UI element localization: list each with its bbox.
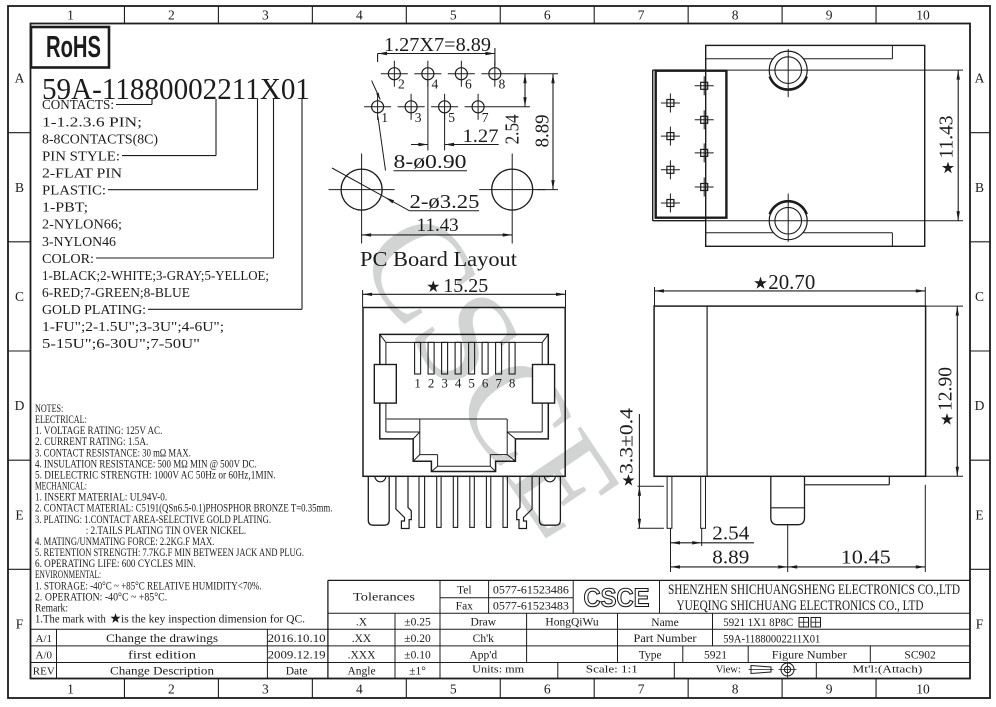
svg-text:PIN STYLE:: PIN STYLE:: [42, 148, 120, 163]
svg-text:1-PBT;: 1-PBT;: [42, 200, 88, 215]
svg-text:F: F: [16, 616, 24, 631]
svg-text:D: D: [975, 398, 985, 413]
svg-text:1.27: 1.27: [463, 127, 499, 147]
svg-text:3: 3: [262, 682, 269, 697]
svg-text:3: 3: [441, 376, 448, 391]
svg-text:4: 4: [455, 376, 462, 391]
svg-text:2.54: 2.54: [502, 114, 524, 144]
svg-text:8.89: 8.89: [712, 547, 749, 569]
svg-text:2016.10.10: 2016.10.10: [268, 633, 326, 645]
svg-text:5: 5: [468, 376, 475, 391]
svg-text:A/1: A/1: [36, 633, 53, 645]
svg-text:2-NYLON66;: 2-NYLON66;: [42, 217, 122, 232]
svg-text:4: 4: [356, 682, 363, 697]
svg-text:Draw: Draw: [471, 617, 497, 629]
svg-text:8: 8: [509, 376, 516, 391]
svg-text:Figure Number: Figure Number: [772, 649, 847, 661]
svg-text:2: 2: [428, 376, 435, 391]
svg-text:1: 1: [67, 682, 74, 697]
svg-text:C: C: [15, 289, 24, 304]
svg-text:REV: REV: [33, 666, 55, 678]
svg-text:A: A: [975, 71, 985, 86]
svg-text:App'd: App'd: [469, 649, 497, 661]
svg-text:±0.25: ±0.25: [404, 617, 431, 629]
svg-text:2: 2: [398, 77, 405, 92]
svg-text:A/0: A/0: [36, 649, 53, 661]
svg-text:9: 9: [826, 682, 833, 697]
svg-text:5: 5: [448, 110, 455, 125]
svg-text:1-FU";2-1.5U";3-3U";4-6U";: 1-FU";2-1.5U";3-3U";4-6U";: [42, 319, 224, 334]
svg-text:2-FLAT PIN: 2-FLAT PIN: [42, 165, 122, 180]
svg-text:11.43: 11.43: [417, 216, 459, 236]
svg-text:Name: Name: [651, 617, 678, 629]
svg-text:B: B: [15, 180, 24, 195]
svg-text:.X: .X: [356, 617, 368, 629]
svg-text:7: 7: [638, 8, 645, 23]
svg-text:9: 9: [826, 8, 833, 23]
svg-text:6: 6: [544, 682, 551, 697]
svg-text:7: 7: [638, 682, 645, 697]
svg-text:4: 4: [356, 8, 363, 23]
svg-text:7: 7: [495, 376, 502, 391]
svg-text:6-RED;7-GREEN;8-BLUE: 6-RED;7-GREEN;8-BLUE: [42, 285, 190, 300]
svg-text:CSCE: CSCE: [584, 585, 650, 613]
svg-text:0577-61523486: 0577-61523486: [493, 584, 569, 596]
svg-text:8-8CONTACTS(8C): 8-8CONTACTS(8C): [42, 131, 158, 147]
svg-text:2009.12.19: 2009.12.19: [268, 649, 326, 661]
svg-text:CONTACTS:: CONTACTS:: [42, 97, 114, 112]
svg-text:Mt'l:(Attach): Mt'l:(Attach): [852, 665, 923, 676]
svg-text:Fax: Fax: [456, 601, 474, 613]
svg-text:7: 7: [482, 110, 489, 125]
svg-text:Change the drawings: Change the drawings: [106, 633, 219, 645]
svg-text:2-ø3.25: 2-ø3.25: [410, 192, 480, 213]
svg-text:2.54: 2.54: [712, 523, 749, 545]
svg-text:Part Number: Part Number: [634, 633, 697, 645]
svg-text:first edition: first edition: [128, 649, 196, 661]
svg-text:3: 3: [262, 8, 269, 23]
svg-text:8: 8: [498, 77, 505, 92]
svg-text:8-ø0.90: 8-ø0.90: [394, 152, 467, 173]
svg-text:.XXX: .XXX: [348, 649, 376, 661]
svg-text:SHENZHEN SHICHUANGSHENG ELECTR: SHENZHEN SHICHUANGSHENG ELECTRONICS CO.,…: [668, 582, 960, 598]
svg-text:±1°: ±1°: [409, 666, 426, 678]
svg-text:3: 3: [415, 110, 422, 125]
svg-text:PC Board Layout: PC Board Layout: [360, 247, 517, 271]
svg-text:1-1.2.3.6 PIN;: 1-1.2.3.6 PIN;: [42, 114, 142, 129]
svg-text:.XX: .XX: [352, 633, 372, 645]
svg-text:Change Description: Change Description: [110, 666, 214, 678]
svg-text:COLOR:: COLOR:: [42, 251, 94, 266]
svg-text:10: 10: [916, 682, 930, 697]
svg-text:10.45: 10.45: [841, 547, 891, 569]
svg-text:Ch'k: Ch'k: [473, 633, 494, 645]
svg-text:5: 5: [450, 682, 457, 697]
svg-text:5: 5: [450, 8, 457, 23]
svg-text:RoHS: RoHS: [46, 29, 101, 64]
svg-text:4: 4: [431, 77, 438, 92]
svg-text:2: 2: [168, 682, 175, 697]
svg-text:59A-11880002211X01: 59A-11880002211X01: [723, 633, 820, 645]
svg-text:B: B: [975, 180, 984, 195]
svg-text:0577-61523483: 0577-61523483: [493, 601, 569, 613]
svg-text:3-NYLON46: 3-NYLON46: [42, 234, 116, 249]
svg-text:11.43: 11.43: [937, 116, 958, 159]
svg-text:Units: mm: Units: mm: [472, 665, 524, 676]
svg-text:1.27X7=8.89: 1.27X7=8.89: [384, 34, 491, 56]
svg-text:2: 2: [168, 8, 175, 23]
svg-text:GOLD PLATING:: GOLD PLATING:: [42, 302, 146, 317]
svg-text:PLASTIC:: PLASTIC:: [42, 183, 106, 198]
svg-text:3.3±0.4: 3.3±0.4: [617, 407, 638, 474]
svg-text:10: 10: [916, 8, 930, 23]
svg-text:Date: Date: [286, 666, 308, 678]
svg-text:C: C: [975, 289, 984, 304]
svg-text:12.90: 12.90: [936, 367, 957, 411]
svg-text:6: 6: [465, 77, 472, 92]
svg-text:A: A: [15, 71, 25, 86]
svg-text:±0.10: ±0.10: [404, 649, 431, 661]
svg-text:Tolerances: Tolerances: [353, 592, 416, 604]
svg-text:HongQiWu: HongQiWu: [545, 617, 598, 629]
svg-text:6: 6: [544, 8, 551, 23]
svg-text:1.The mark with: 1.The mark with: [35, 614, 106, 626]
svg-text:1-BLACK;2-WHITE;3-GRAY;5-YELLO: 1-BLACK;2-WHITE;3-GRAY;5-YELLOE;: [42, 268, 269, 283]
svg-text:5-15U";6-30U";7-50U": 5-15U";6-30U";7-50U": [42, 336, 200, 351]
svg-text:Angle: Angle: [347, 666, 375, 678]
svg-text:6: 6: [482, 376, 489, 391]
svg-text:±0.20: ±0.20: [404, 633, 431, 645]
svg-text:E: E: [975, 507, 983, 522]
svg-text:8: 8: [732, 8, 739, 23]
svg-text:1: 1: [381, 110, 388, 125]
svg-text:5921 1X1 8P8C: 5921 1X1 8P8C: [723, 617, 793, 629]
svg-text:5921: 5921: [704, 649, 727, 661]
svg-text:Tel: Tel: [457, 584, 472, 596]
svg-text:D: D: [15, 398, 25, 413]
svg-text:SC902: SC902: [904, 649, 936, 661]
svg-text:E: E: [15, 507, 23, 522]
svg-text:Scale: 1:1: Scale: 1:1: [586, 665, 638, 676]
svg-text:F: F: [976, 616, 984, 631]
svg-text:8: 8: [732, 682, 739, 697]
svg-text:1: 1: [414, 376, 421, 391]
svg-text:1: 1: [67, 8, 74, 23]
svg-text:View:: View:: [716, 665, 741, 676]
svg-text:Type: Type: [639, 649, 662, 661]
svg-text:8.89: 8.89: [532, 114, 554, 147]
svg-text:is the key inspection dimensio: is the key inspection dimension for QC.: [121, 614, 305, 626]
svg-text:YUEQING SHICHUANG ELECTRONICS: YUEQING SHICHUANG ELECTRONICS CO., LTD: [677, 598, 924, 614]
